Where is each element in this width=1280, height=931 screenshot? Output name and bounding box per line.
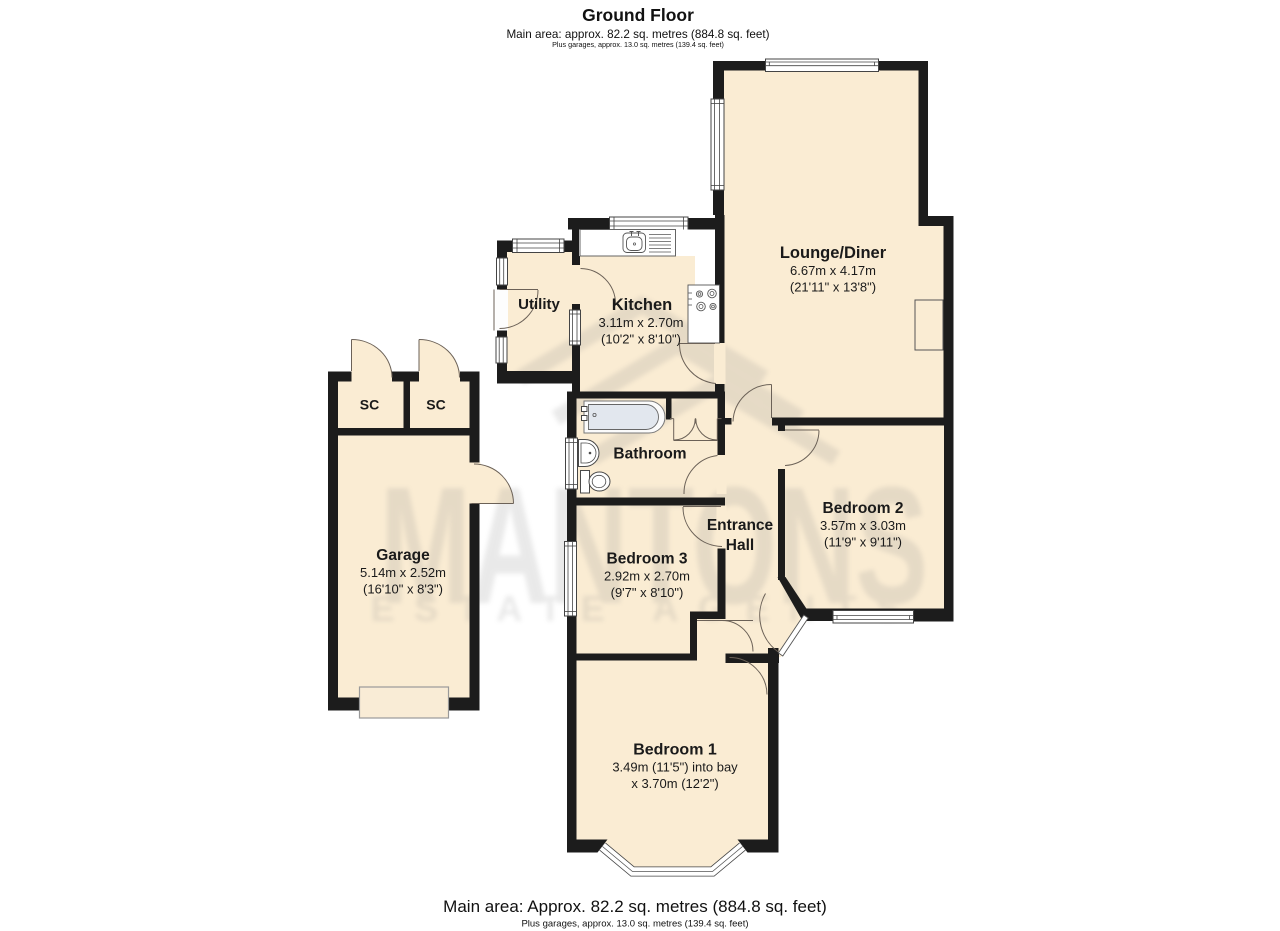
svg-text:Garage: Garage [376, 547, 430, 564]
svg-text:(16'10" x 8'3"): (16'10" x 8'3") [363, 582, 443, 597]
svg-text:SC: SC [360, 397, 379, 413]
svg-text:(21'11" x 13'8"): (21'11" x 13'8") [790, 280, 876, 295]
svg-text:Main area: Approx. 82.2 sq. me: Main area: Approx. 82.2 sq. metres (884.… [443, 897, 827, 916]
svg-text:Bathroom: Bathroom [613, 446, 686, 463]
svg-text:6.67m x 4.17m: 6.67m x 4.17m [790, 263, 876, 278]
svg-text:Lounge/Diner: Lounge/Diner [780, 244, 887, 262]
svg-text:Ground Floor: Ground Floor [582, 5, 694, 25]
svg-text:3.57m x 3.03m: 3.57m x 3.03m [820, 518, 906, 533]
svg-text:(10'2" x 8'10"): (10'2" x 8'10") [601, 332, 681, 347]
svg-text:Plus garages, approx. 13.0 sq.: Plus garages, approx. 13.0 sq. metres (1… [521, 919, 748, 930]
svg-text:3.49m (11'5") into bay: 3.49m (11'5") into bay [612, 760, 738, 775]
svg-text:3.11m x 2.70m: 3.11m x 2.70m [598, 315, 683, 330]
svg-text:Entrance: Entrance [707, 517, 774, 534]
svg-text:2.92m x 2.70m: 2.92m x 2.70m [604, 569, 690, 584]
svg-text:Bedroom 2: Bedroom 2 [823, 500, 904, 517]
svg-text:x 3.70m (12'2"): x 3.70m (12'2") [631, 776, 718, 791]
svg-text:SC: SC [426, 397, 445, 413]
svg-text:(11'9" x 9'11"): (11'9" x 9'11") [824, 535, 902, 550]
svg-text:5.14m x 2.52m: 5.14m x 2.52m [360, 565, 446, 580]
svg-text:Utility: Utility [518, 296, 560, 313]
svg-text:Kitchen: Kitchen [612, 296, 673, 314]
svg-text:Hall: Hall [726, 537, 754, 554]
svg-text:Bedroom 3: Bedroom 3 [607, 551, 688, 568]
svg-text:Plus garages, approx. 13.0 sq.: Plus garages, approx. 13.0 sq. metres (1… [552, 40, 724, 49]
svg-text:(9'7" x 8'10"): (9'7" x 8'10") [611, 585, 684, 600]
svg-text:Bedroom 1: Bedroom 1 [633, 742, 717, 759]
